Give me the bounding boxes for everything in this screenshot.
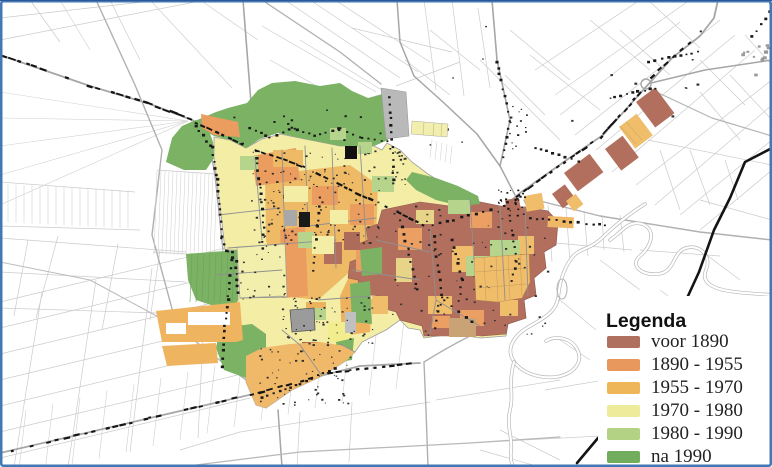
svg-text:1890 - 1955: 1890 - 1955 — [651, 354, 743, 375]
svg-text:1980 - 1990: 1980 - 1990 — [651, 423, 743, 444]
svg-text:na 1990: na 1990 — [651, 446, 712, 467]
svg-text:1970 - 1980: 1970 - 1980 — [651, 400, 743, 421]
svg-text:voor 1890: voor 1890 — [651, 331, 729, 352]
svg-text:Legenda: Legenda — [606, 310, 686, 332]
svg-text:1955 - 1970: 1955 - 1970 — [651, 377, 743, 398]
